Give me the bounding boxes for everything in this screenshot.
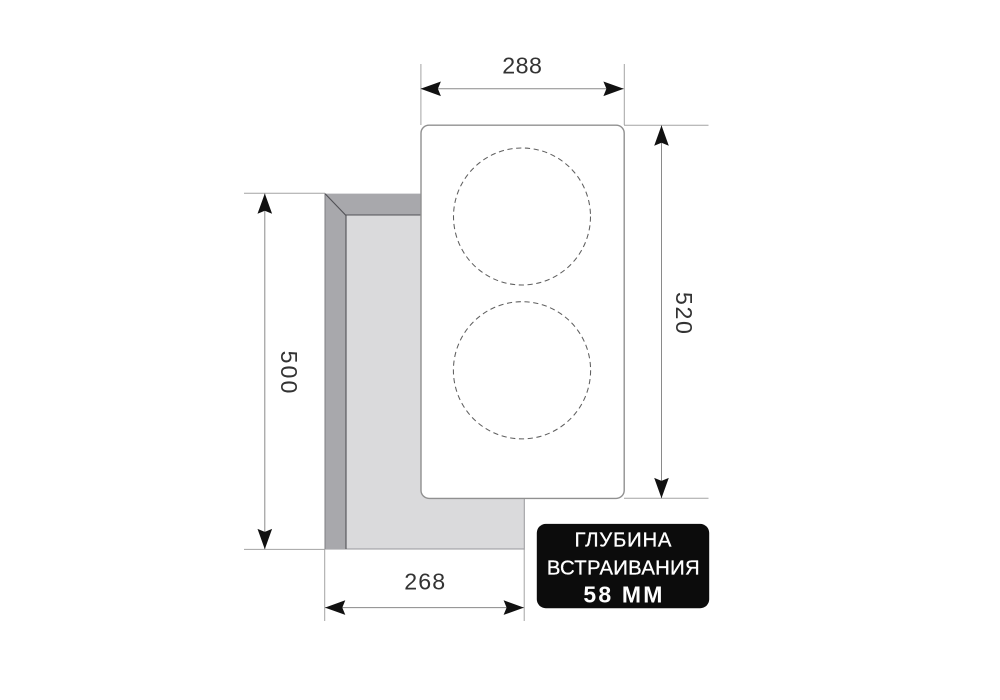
- svg-text:58 ММ: 58 ММ: [583, 582, 664, 608]
- svg-text:500: 500: [276, 351, 302, 396]
- svg-text:288: 288: [502, 53, 542, 79]
- svg-text:520: 520: [671, 292, 697, 336]
- svg-text:ГЛУБИНА: ГЛУБИНА: [575, 530, 673, 552]
- svg-text:ВСТРАИВАНИЯ: ВСТРАИВАНИЯ: [547, 557, 700, 579]
- svg-text:268: 268: [404, 569, 446, 595]
